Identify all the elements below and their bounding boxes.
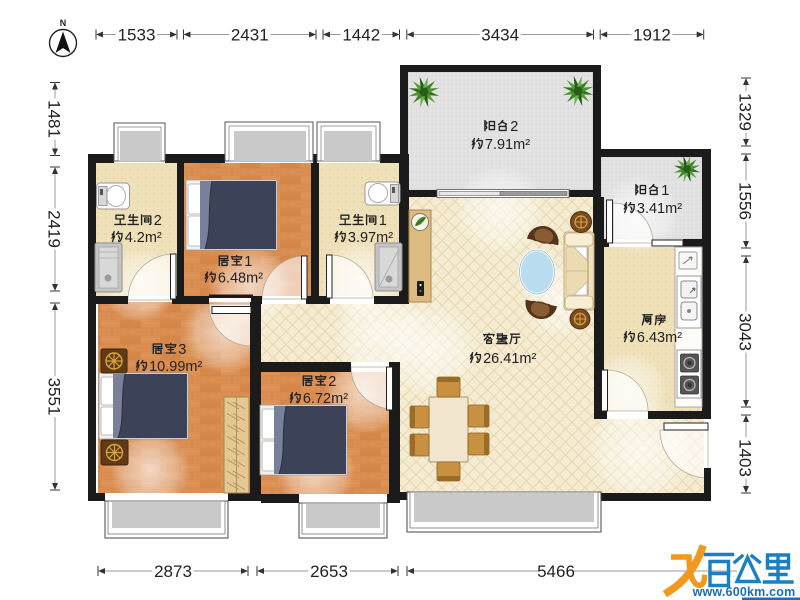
svg-text:1912: 1912 [633, 26, 671, 45]
svg-text:N: N [60, 18, 67, 28]
svg-text:5466: 5466 [537, 562, 575, 581]
svg-text:10.99m²: 10.99m² [149, 359, 202, 375]
svg-text:2: 2 [154, 213, 162, 229]
svg-text:1442: 1442 [342, 26, 380, 45]
svg-text:6.72m²: 6.72m² [303, 391, 348, 407]
svg-text:1: 1 [661, 183, 669, 199]
svg-text:www.600km.com: www.600km.com [692, 585, 796, 599]
svg-text:26.41m²: 26.41m² [483, 351, 536, 367]
svg-text:3434: 3434 [481, 26, 519, 45]
svg-text:3.41m²: 3.41m² [637, 201, 682, 217]
svg-text:1: 1 [379, 213, 387, 229]
svg-text:3043: 3043 [736, 313, 755, 351]
svg-text:2: 2 [510, 119, 518, 135]
svg-text:3: 3 [178, 342, 186, 358]
svg-text:1329: 1329 [736, 93, 755, 131]
svg-text:7.91m²: 7.91m² [485, 137, 530, 153]
svg-text:2419: 2419 [45, 210, 64, 248]
svg-text:1533: 1533 [118, 26, 156, 45]
svg-text:1403: 1403 [736, 439, 755, 477]
svg-text:6.43m²: 6.43m² [637, 330, 682, 346]
svg-text:2: 2 [328, 374, 336, 390]
svg-text:1481: 1481 [45, 100, 64, 138]
svg-text:2873: 2873 [154, 562, 192, 581]
svg-text:2431: 2431 [231, 26, 269, 45]
svg-text:3.97m²: 3.97m² [348, 230, 393, 246]
svg-text:3551: 3551 [45, 378, 64, 416]
svg-text:4.2m²: 4.2m² [125, 230, 162, 246]
svg-text:2653: 2653 [310, 562, 348, 581]
svg-text:6.48m²: 6.48m² [218, 271, 263, 287]
svg-text:1: 1 [244, 254, 252, 270]
svg-text:1556: 1556 [736, 182, 755, 220]
